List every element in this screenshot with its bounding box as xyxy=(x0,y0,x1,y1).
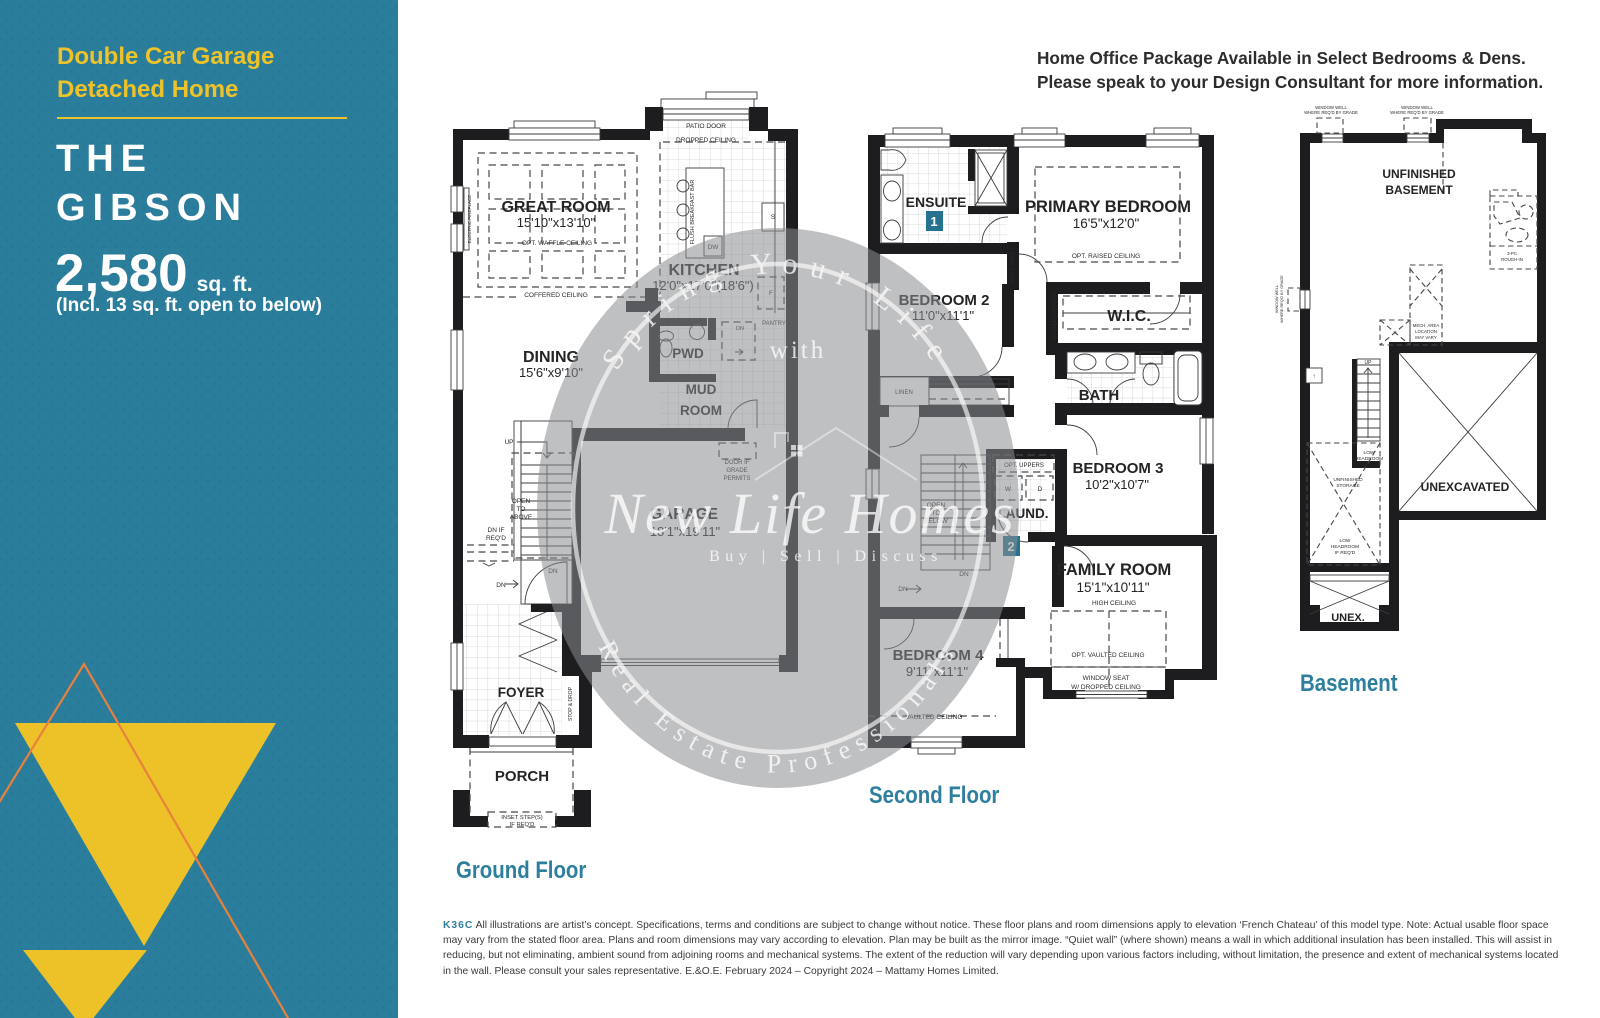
svg-text:WHERE REQ'D BY GRADE: WHERE REQ'D BY GRADE xyxy=(1304,110,1358,115)
svg-text:15'1"x10'11": 15'1"x10'11" xyxy=(1076,580,1149,595)
svg-text:UNFINISHED: UNFINISHED xyxy=(1333,477,1363,483)
svg-text:WHERE REQ'D BY GRADE: WHERE REQ'D BY GRADE xyxy=(1280,275,1284,323)
svg-text:UNEX.: UNEX. xyxy=(1331,612,1365,624)
svg-text:MECH. AREA: MECH. AREA xyxy=(1413,323,1440,328)
svg-text:W.I.C.: W.I.C. xyxy=(1107,308,1151,325)
svg-text:LOCATION: LOCATION xyxy=(1415,329,1437,334)
svg-text:WINDOW WELL: WINDOW WELL xyxy=(1275,285,1279,313)
svg-text:DOUBLE HANGING: DOUBLE HANGING xyxy=(1052,291,1058,341)
svg-text:16'5"x12'0": 16'5"x12'0" xyxy=(1073,216,1140,231)
svg-text:New Life Homes: New Life Homes xyxy=(603,481,1015,546)
svg-text:DN: DN xyxy=(496,582,506,589)
svg-text:UNEXCAVATED: UNEXCAVATED xyxy=(1421,480,1510,494)
svg-text:UP: UP xyxy=(504,439,513,446)
svg-text:10'2"x10'7": 10'2"x10'7" xyxy=(1085,477,1149,492)
svg-text:LOW: LOW xyxy=(1340,538,1351,544)
svg-text:PATIO DOOR: PATIO DOOR xyxy=(686,123,726,130)
svg-text:STORAGE: STORAGE xyxy=(1336,483,1359,489)
svg-text:DN IF: DN IF xyxy=(488,527,505,534)
svg-text:W/ DROPPED CEILING: W/ DROPPED CEILING xyxy=(1071,684,1141,691)
svg-text:↑: ↑ xyxy=(1313,374,1316,380)
svg-text:OPT. VAULTED CEILING: OPT. VAULTED CEILING xyxy=(1071,652,1144,659)
svg-text:WHERE REQ'D BY GRADE: WHERE REQ'D BY GRADE xyxy=(1390,110,1444,115)
svg-text:BATH: BATH xyxy=(1079,387,1120,404)
svg-text:DROPPED CEILING: DROPPED CEILING xyxy=(676,137,736,144)
svg-text:WINDOW SEAT: WINDOW SEAT xyxy=(1083,675,1130,682)
svg-text:IF REQ'D: IF REQ'D xyxy=(1335,550,1356,556)
svg-text:INSET STEP(S): INSET STEP(S) xyxy=(501,815,543,821)
svg-text:Buy | Sell | Discuss: Buy | Sell | Discuss xyxy=(709,548,943,565)
svg-text:REQ'D: REQ'D xyxy=(486,535,506,542)
svg-text:IF REQ'D: IF REQ'D xyxy=(510,822,535,828)
svg-text:UP: UP xyxy=(1365,360,1373,366)
svg-text:LOW: LOW xyxy=(1364,450,1375,456)
svg-text:FAMILY ROOM: FAMILY ROOM xyxy=(1057,561,1172,579)
svg-text:ROUGH-IN: ROUGH-IN xyxy=(1501,257,1523,262)
svg-text:ELECTRIC FIREPLACE: ELECTRIC FIREPLACE xyxy=(467,195,472,244)
svg-text:MAY VARY: MAY VARY xyxy=(1415,335,1437,340)
svg-text:HEADROOM: HEADROOM xyxy=(1331,544,1359,550)
svg-text:OPT. RAISED CEILING: OPT. RAISED CEILING xyxy=(1072,253,1140,260)
svg-text:HIGH CEILING: HIGH CEILING xyxy=(1092,600,1136,607)
svg-text:UNFINISHED: UNFINISHED xyxy=(1382,167,1456,181)
svg-text:ENSUITE: ENSUITE xyxy=(906,194,967,210)
svg-text:BASEMENT: BASEMENT xyxy=(1385,183,1453,197)
svg-text:3-PC: 3-PC xyxy=(1507,251,1517,256)
svg-text:HEADROOM: HEADROOM xyxy=(1355,456,1383,462)
svg-text:with: with xyxy=(770,337,826,364)
svg-text:BEDROOM 3: BEDROOM 3 xyxy=(1073,460,1164,477)
